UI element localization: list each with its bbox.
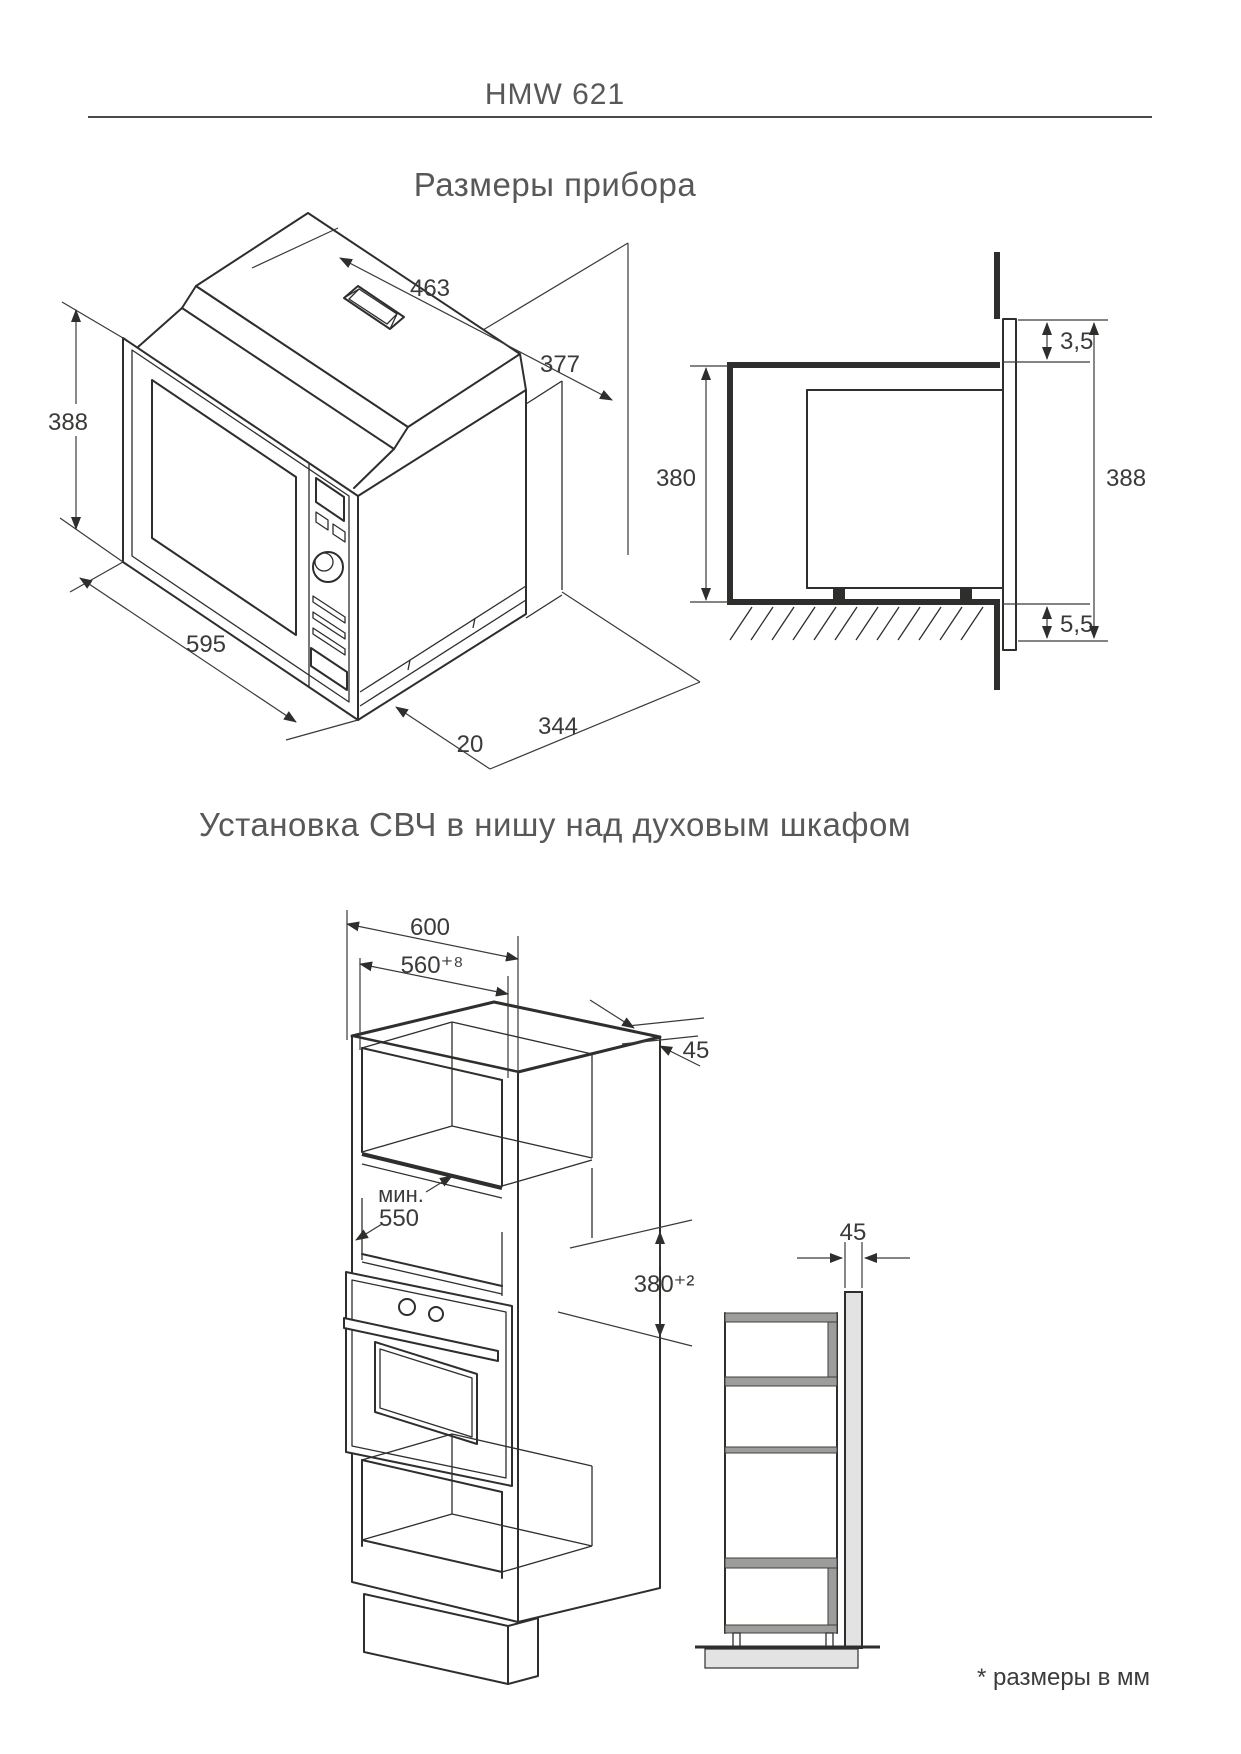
side-view-shelves [725,1313,837,1633]
dim-niche-height-install: 380⁺² [634,1271,695,1298]
side-view-dimensions: 45 [797,1219,910,1288]
dim-panel-thickness: 45 [683,1037,710,1064]
dim-front-height: 388 [1106,465,1146,492]
manual-page: HMW 621 Размеры прибора Установка СВЧ в … [0,0,1241,1754]
dim-depth-top: 463 [410,275,450,302]
oven-front [344,1272,512,1486]
cabinet-side-view-drawing: 45 [695,1219,910,1668]
niche-cross-section-drawing: 380 3,5 5,5 388 [656,252,1146,690]
dim-depth-min-prefix: мин. [378,1182,424,1207]
foot-left [833,588,845,599]
dim-niche-width: 560⁺⁸ [401,952,464,979]
side-view-outline [725,1313,837,1633]
dim-front-panel-thickness: 45 [840,1219,867,1246]
foot-right [960,588,972,599]
cabinet-isometric-drawing: 600 560⁺⁸ 45 мин. 550 [344,910,709,1684]
dim-depth-min-value: 550 [379,1205,419,1232]
dim-base-step: 20 [457,731,484,758]
microwave-back-frame [526,381,562,618]
dim-gap-bottom: 5,5 [1060,611,1093,638]
dim-width-front: 595 [186,631,226,658]
niche-profile [730,365,1000,602]
dim-niche-height: 380 [656,465,696,492]
dim-base-depth: 344 [538,713,578,740]
dim-height-back: 377 [540,351,580,378]
dim-cabinet-width: 600 [410,914,450,941]
hatching [730,607,983,640]
microwave-body-section [807,390,1003,588]
floor-plinth [705,1649,858,1668]
front-panel-strip [845,1292,862,1648]
dim-height-front: 388 [48,409,88,436]
technical-drawings: 388 463 377 595 20 344 [0,0,1241,1754]
dim-gap-top: 3,5 [1060,328,1093,355]
microwave-isometric-drawing: 388 463 377 595 20 344 [48,213,700,769]
front-frame-section [1003,319,1016,650]
side-view-legs [733,1633,833,1647]
